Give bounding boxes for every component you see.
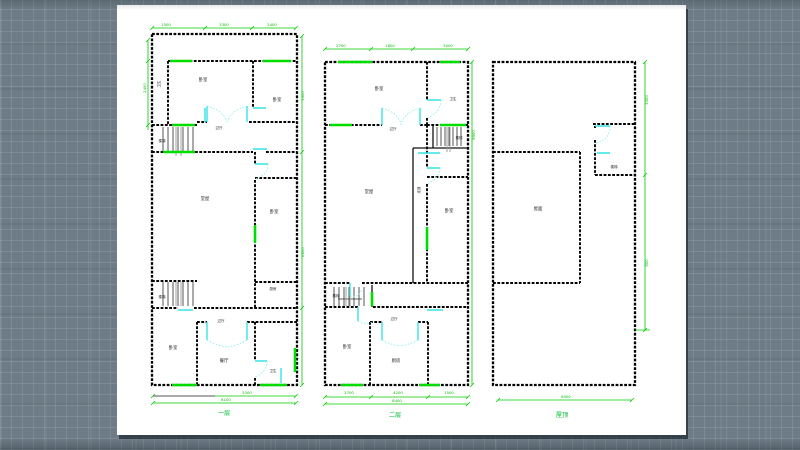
dim-label: 1800 bbox=[385, 43, 395, 48]
dim-label: 1500 bbox=[444, 390, 454, 395]
stair bbox=[163, 127, 193, 306]
room-label: 堂屋 bbox=[201, 195, 210, 202]
plan-caption: 屋顶 bbox=[556, 412, 568, 419]
inner-walls bbox=[152, 61, 297, 385]
room-label: 楼梯 bbox=[333, 293, 341, 298]
room-label: 卧室 bbox=[169, 344, 178, 351]
room-label: 卫生 bbox=[450, 96, 458, 101]
door-markers bbox=[595, 126, 610, 153]
window-markers bbox=[163, 61, 295, 385]
room-label: 厨房 bbox=[392, 357, 401, 364]
door-markers bbox=[350, 100, 443, 346]
room-label: 卫生 bbox=[270, 368, 278, 373]
dim-label: 3000 bbox=[443, 43, 453, 48]
room-label: 楼梯 bbox=[159, 294, 166, 299]
room-label: 过厅 bbox=[390, 126, 398, 131]
dimension-lines bbox=[496, 60, 650, 402]
dim-label: 3300 bbox=[219, 22, 229, 27]
dim-label: 9900 bbox=[471, 130, 476, 140]
floor-plan-2: 卧室 卫生 过厅 楼梯 堂屋 走道 卧室 楼梯 过厅 卧室 厨房 2700 18… bbox=[323, 43, 476, 419]
plan-caption: 一层 bbox=[218, 410, 230, 417]
dim-label: 6600 bbox=[300, 247, 305, 257]
outer-walls bbox=[325, 62, 468, 385]
room-label: 楼梯 bbox=[611, 164, 619, 169]
inner-walls bbox=[325, 62, 468, 385]
room-label: 卫生 bbox=[156, 80, 161, 87]
dim-label: 1500 bbox=[161, 22, 171, 27]
dim-label: 2700 bbox=[336, 43, 346, 48]
window-markers bbox=[330, 62, 466, 385]
room-label: 卧室 bbox=[199, 76, 208, 83]
room-labels: 卧室 卫生 过厅 楼梯 堂屋 走道 卧室 楼梯 过厅 卧室 厨房 bbox=[333, 85, 464, 364]
stair bbox=[334, 127, 461, 306]
drawing-canvas: 卧室 卧室 卫生 过厅 楼梯 堂屋 卧室 厨房 楼梯 过厅 卧室 餐厅 卫生 1… bbox=[0, 0, 800, 450]
room-label: 厨房 bbox=[270, 286, 278, 291]
dim-label: 2700 bbox=[344, 390, 354, 395]
room-label: 屋面 bbox=[534, 206, 543, 212]
room-labels: 卧室 卧室 卫生 过厅 楼梯 堂屋 卧室 厨房 楼梯 过厅 卧室 餐厅 卫生 bbox=[156, 76, 282, 373]
outer-walls bbox=[493, 62, 635, 385]
dim-label: 3300 bbox=[242, 390, 252, 395]
inner-walls bbox=[493, 124, 635, 283]
room-label: 餐厅 bbox=[220, 357, 229, 364]
room-label: 卧室 bbox=[343, 343, 352, 350]
desktop-background: 卧室 卧室 卫生 过厅 楼梯 堂屋 卧室 厨房 楼梯 过厅 卧室 餐厅 卫生 1… bbox=[0, 0, 800, 450]
dim-label: 900 bbox=[644, 259, 649, 267]
roof-plan: 楼梯 屋面 3300 900 6000 屋顶 bbox=[493, 60, 650, 419]
dim-label: 6000 bbox=[561, 394, 571, 399]
floor-plan-1: 卧室 卧室 卫生 过厅 楼梯 堂屋 卧室 厨房 楼梯 过厅 卧室 餐厅 卫生 1… bbox=[142, 22, 305, 417]
room-label: 楼梯 bbox=[456, 135, 464, 140]
dim-label: 2400 bbox=[267, 22, 277, 27]
room-label: 过厅 bbox=[391, 316, 399, 321]
door-markers bbox=[178, 106, 281, 383]
room-label: 堂屋 bbox=[365, 188, 374, 195]
dimension-labels: 1500 3300 2400 3300 6600 2400 3300 8100 bbox=[142, 22, 305, 402]
room-label: 卧室 bbox=[270, 208, 279, 215]
room-labels: 楼梯 屋面 bbox=[534, 164, 618, 212]
plan-caption: 二层 bbox=[389, 412, 401, 419]
dim-label: 2400 bbox=[142, 83, 147, 93]
room-label: 过厅 bbox=[216, 125, 223, 130]
room-label: 走道 bbox=[416, 186, 421, 194]
room-label: 楼梯 bbox=[159, 138, 166, 143]
room-label: 卧室 bbox=[445, 207, 454, 214]
room-label: 卧室 bbox=[273, 96, 282, 103]
dim-label: 3300 bbox=[300, 91, 305, 101]
room-label: 卧室 bbox=[375, 85, 384, 92]
dim-label: 8100 bbox=[221, 397, 231, 402]
dim-label: 8400 bbox=[392, 398, 402, 403]
dim-label: 3300 bbox=[644, 95, 649, 105]
room-label: 过厅 bbox=[218, 318, 225, 323]
dim-label: 4200 bbox=[393, 390, 403, 395]
